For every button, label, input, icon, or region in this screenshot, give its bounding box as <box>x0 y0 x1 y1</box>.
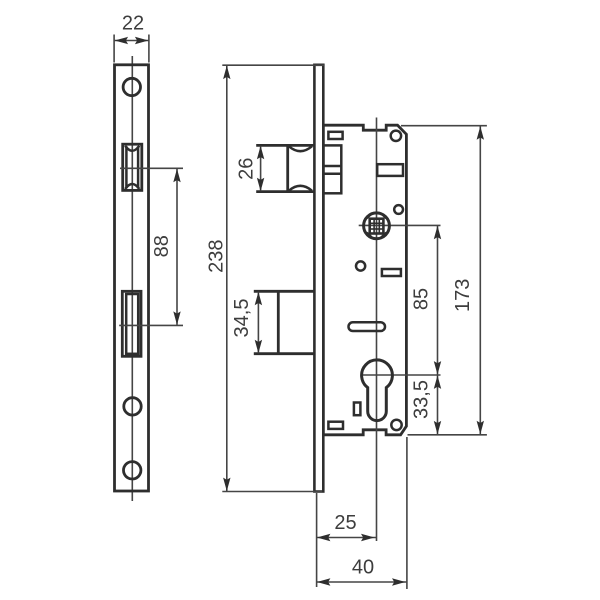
svg-text:173: 173 <box>452 279 474 312</box>
svg-text:33,5: 33,5 <box>411 380 433 419</box>
svg-text:40: 40 <box>352 556 374 578</box>
svg-text:34,5: 34,5 <box>231 299 253 338</box>
svg-text:25: 25 <box>334 512 356 534</box>
svg-text:85: 85 <box>411 288 433 310</box>
svg-text:238: 238 <box>206 240 228 273</box>
svg-text:26: 26 <box>236 158 258 180</box>
svg-text:88: 88 <box>151 235 173 257</box>
svg-text:22: 22 <box>122 13 144 35</box>
